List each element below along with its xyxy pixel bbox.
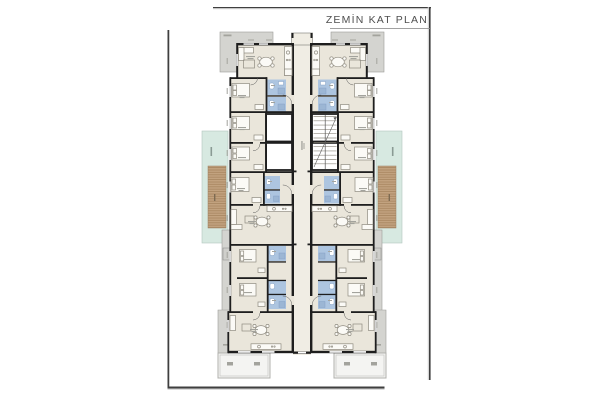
kitchen-counter [251, 344, 281, 350]
frame-line-left [168, 30, 170, 388]
page-title: ZEMİN KAT PLAN [326, 13, 428, 26]
sofa [230, 316, 236, 331]
core-shaft-lower [266, 143, 292, 171]
frame-line-top [213, 7, 431, 8]
frame-line-bottom [168, 387, 385, 389]
kitchen-counter [267, 206, 292, 212]
plan-sheet: ZEMİN KAT PLAN [0, 0, 600, 400]
title-underline [330, 28, 431, 29]
pergola-outline [218, 353, 270, 378]
wood-deck [208, 166, 226, 228]
core-shaft-upper [266, 114, 292, 142]
central-corridor [292, 33, 313, 355]
wardrobe [255, 105, 264, 110]
deck-label-smudge [214, 194, 215, 201]
garden-label-smudge [211, 147, 213, 156]
sofa [231, 210, 237, 225]
floor-plan-drawing: ZEMİN KAT PLAN [0, 0, 600, 400]
dining-table [260, 57, 273, 67]
dining-table [256, 217, 268, 226]
frame-line-right [429, 7, 431, 380]
corridor-floor [293, 36, 311, 355]
entrance-canopy [292, 33, 313, 45]
